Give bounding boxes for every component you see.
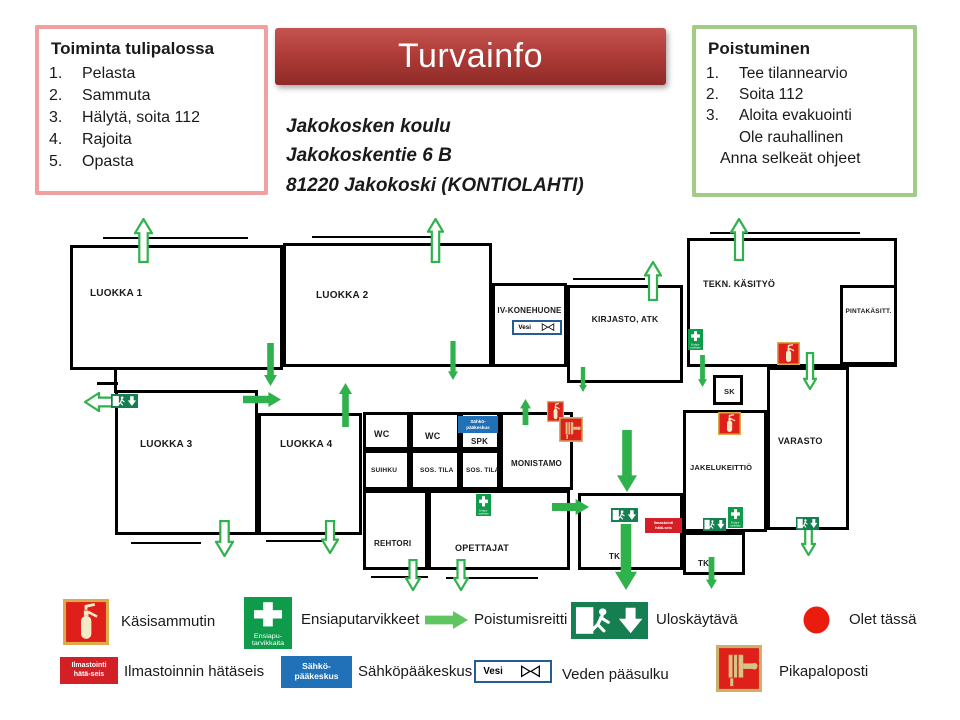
- address-line: 81220 Jakokoski (KONTIOLAHTI): [286, 171, 686, 200]
- page-title: Turvainfo: [398, 37, 543, 76]
- exit-direction-arrow: [427, 218, 444, 263]
- fire-extinguisher-icon: [777, 342, 800, 365]
- fire-step: Sammuta: [49, 85, 254, 107]
- escape-route-arrow: [242, 391, 282, 408]
- room-opettajat: OPETTAJAT: [428, 490, 570, 570]
- room-label: MONISTAMO: [503, 459, 570, 468]
- room-luokka-2: LUOKKA 2: [283, 243, 492, 367]
- room-label: TEKN. KÄSITYÖ: [703, 279, 775, 289]
- fire-extinguisher-icon: [718, 412, 741, 435]
- exit-sign-icon: [571, 602, 648, 639]
- room-label: VARASTO: [778, 436, 823, 446]
- room-label: LUOKKA 3: [140, 439, 192, 450]
- svg-text:tarvikkaita: tarvikkaita: [730, 524, 741, 527]
- fire-step: Opasta: [49, 151, 254, 173]
- room-luokka-3: LUOKKA 3: [115, 390, 258, 535]
- escape-route-arrow: [616, 429, 638, 493]
- first-aid-icon: Ensiapu-tarvikkaita: [476, 494, 491, 516]
- escape-route-arrow: [338, 382, 353, 428]
- escape-route-arrow: [614, 523, 638, 591]
- wall-line: [573, 278, 645, 280]
- exit-direction-arrow: [453, 559, 469, 591]
- svg-text:tarvikkaita: tarvikkaita: [690, 346, 701, 349]
- room-pintakasitt: PINTAKÄSITT.: [840, 285, 897, 365]
- room-label: JAKELUKEITTIÖ: [690, 463, 752, 472]
- exit-direction-arrow: [803, 352, 817, 390]
- exit-direction-arrow: [730, 218, 748, 261]
- main-electric-panel-sign: Sähkö-pääkeskus: [458, 416, 498, 433]
- room-label: PINTAKÄSITT.: [843, 308, 894, 315]
- svg-text:tarvikkaita: tarvikkaita: [478, 512, 489, 515]
- evacuation-box: Poistuminen Tee tilannearvio Soita 112 A…: [692, 25, 917, 197]
- exit-direction-arrow: [801, 528, 816, 556]
- title-banner: Turvainfo: [275, 28, 666, 85]
- legend-label: Poistumisreitti: [474, 611, 567, 628]
- evac-step: Aloita evakuointi: [706, 105, 903, 126]
- room-wc-1: WC: [363, 412, 410, 450]
- room-luokka-4: LUOKKA 4: [258, 413, 362, 535]
- exit-sign-icon: [703, 518, 726, 531]
- room-label: SPK: [471, 437, 488, 446]
- evac-extra-line: Ole rauhallinen: [739, 127, 903, 148]
- legend-label: Sähköpääkeskus: [358, 663, 472, 680]
- room-rehtori: REHTORI: [363, 490, 428, 570]
- wall-line: [312, 236, 440, 238]
- escape-route-arrow: [519, 398, 532, 426]
- wall-line: [131, 542, 201, 544]
- first-aid-icon: Ensiapu-tarvikkaita: [244, 597, 292, 649]
- escape-route-arrow: [705, 556, 718, 590]
- legend-label: Ilmastoinnin hätäseis: [124, 663, 264, 680]
- hvac-emergency-stop-sign: Ilmastointihätä-seis: [645, 518, 682, 533]
- water-main-valve-sign: Vesi: [474, 660, 552, 683]
- fire-instructions-box: Toiminta tulipalossa Pelasta Sammuta Häl…: [35, 25, 268, 195]
- room-label: WC: [374, 429, 389, 439]
- exit-sign-icon: [111, 394, 138, 408]
- exit-sign-icon: [796, 517, 819, 530]
- safety-poster: { "title": "Turvainfo", "address": { "li…: [0, 0, 960, 720]
- address-line: Jakokoskentie 6 B: [286, 141, 686, 170]
- room-sos-tila-2: SOS. TILA: [460, 450, 500, 490]
- room-label: SOS. TILA: [420, 467, 454, 474]
- fire-hose-icon: [559, 417, 583, 442]
- room-label: IV-KONEHUONE: [495, 306, 564, 315]
- escape-route-arrow: [697, 354, 708, 388]
- wall-line: [266, 540, 324, 542]
- hvac-emergency-stop-sign: Ilmastointihätä-seis: [60, 657, 118, 684]
- room-sos-tila-1: SOS. TILA: [410, 450, 460, 490]
- legend-label: Uloskäytävä: [656, 611, 738, 628]
- room-wc-2: WC: [410, 412, 460, 450]
- room-label: OPETTAJAT: [455, 543, 509, 553]
- exit-direction-arrow: [644, 261, 662, 301]
- legend-label: Käsisammutin: [121, 613, 215, 630]
- exit-direction-arrow: [215, 520, 234, 557]
- escape-route-arrow-icon: [424, 610, 469, 630]
- fire-hose-icon: [716, 645, 762, 692]
- floorplan: LUOKKA 1LUOKKA 2IV-KONEHUONEKIRJASTO, AT…: [0, 210, 960, 605]
- legend-label: Veden pääsulku: [562, 666, 669, 683]
- room-varasto: VARASTO: [767, 367, 849, 530]
- you-are-here-dot: [803, 606, 830, 634]
- svg-text:tarvikkaita: tarvikkaita: [252, 641, 285, 647]
- escape-route-arrow: [578, 366, 588, 393]
- escape-route-arrow: [551, 498, 590, 516]
- room-label: KIRJASTO, ATK: [570, 314, 680, 324]
- main-electric-panel-sign: Sähkö-pääkeskus: [281, 656, 352, 688]
- fire-step: Rajoita: [49, 129, 254, 151]
- room-label: LUOKKA 2: [316, 290, 368, 301]
- fire-step: Hälytä, soita 112: [49, 107, 254, 129]
- legend-label: Olet tässä: [849, 611, 917, 628]
- legend-label: Ensiaputarvikkeet: [301, 611, 419, 628]
- school-address: Jakokosken koulu Jakokoskentie 6 B 81220…: [286, 112, 686, 200]
- water-main-valve-sign: Vesi: [512, 320, 562, 335]
- evac-box-title: Poistuminen: [708, 39, 903, 59]
- room-label: SUIHKU: [371, 467, 397, 474]
- fire-step: Pelasta: [49, 63, 254, 85]
- address-line: Jakokosken koulu: [286, 112, 686, 141]
- room-sk: SK: [713, 375, 743, 405]
- legend-label: Pikapaloposti: [779, 663, 868, 680]
- room-label: LUOKKA 1: [90, 288, 142, 299]
- exit-direction-arrow: [405, 559, 421, 591]
- first-aid-icon: Ensiapu-tarvikkaita: [688, 329, 703, 350]
- room-label: LUOKKA 4: [280, 439, 332, 450]
- fire-box-title: Toiminta tulipalossa: [51, 39, 254, 59]
- room-luokka-1: LUOKKA 1: [70, 245, 283, 370]
- evac-step: Tee tilannearvio: [706, 63, 903, 84]
- room-label: REHTORI: [374, 539, 411, 548]
- evac-step: Soita 112: [706, 84, 903, 105]
- exit-sign-icon: [611, 508, 638, 522]
- exit-direction-arrow: [84, 392, 114, 412]
- exit-direction-arrow: [321, 520, 339, 554]
- escape-route-arrow: [263, 342, 278, 387]
- svg-text:Ensiapu-: Ensiapu-: [254, 633, 282, 639]
- wall-line: [103, 237, 248, 239]
- room-label: SK: [724, 387, 735, 396]
- first-aid-icon: Ensiapu-tarvikkaita: [728, 507, 743, 528]
- escape-route-arrow: [447, 340, 459, 381]
- room-label: SOS. TILA: [466, 467, 500, 474]
- evac-extra-line: Anna selkeät ohjeet: [720, 148, 903, 170]
- wall-line: [114, 370, 117, 393]
- room-suihku: SUIHKU: [363, 450, 410, 490]
- room-label: WC: [425, 431, 440, 441]
- exit-direction-arrow: [134, 218, 153, 263]
- fire-extinguisher-icon: [63, 599, 109, 645]
